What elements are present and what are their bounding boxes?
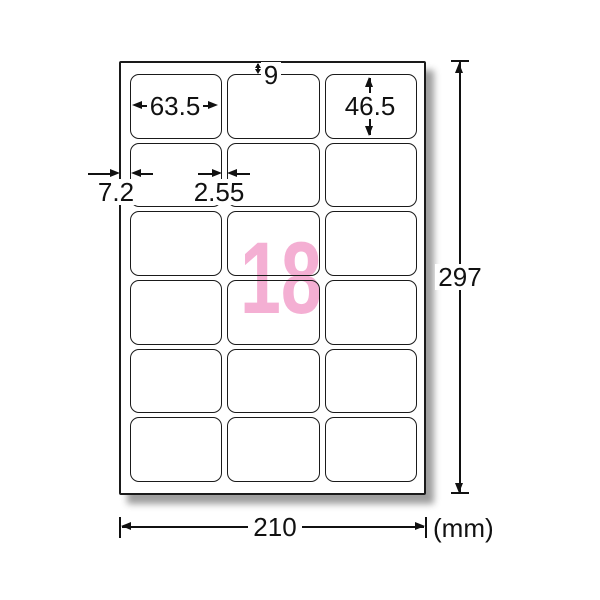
dim-end-cap (451, 492, 469, 494)
label-cell (325, 417, 417, 482)
dim-sheet-height-value: 297 (435, 264, 485, 290)
label-cell (227, 211, 319, 276)
dim-line (237, 173, 250, 175)
arrowhead-right-icon (212, 169, 222, 177)
arrowhead-down-icon (365, 126, 373, 136)
label-sheet-dimension-diagram: 18 63.5 46.5 9 7.2 2.55 (0, 0, 600, 600)
dim-label-width-value: 63.5 (147, 93, 203, 119)
label-cell (227, 349, 319, 414)
unit-label: (mm) (433, 514, 494, 542)
arrowhead-left-icon (132, 101, 142, 109)
dim-side-margin-value: 7.2 (92, 179, 140, 205)
label-cell (130, 349, 222, 414)
label-cell (227, 280, 319, 345)
label-grid (130, 74, 417, 482)
label-cell (130, 417, 222, 482)
dim-end-cap (425, 517, 427, 538)
label-cell (130, 280, 222, 345)
dim-line (88, 173, 111, 175)
arrowhead-right-icon (110, 169, 120, 177)
dim-sheet-width-value: 210 (248, 514, 302, 540)
arrowhead-right-icon (208, 101, 218, 109)
label-cell (325, 211, 417, 276)
arrowhead-up-icon (365, 77, 373, 87)
arrowhead-left-icon (121, 522, 131, 530)
label-cell (325, 280, 417, 345)
dim-column-gap-value: 2.55 (187, 179, 251, 205)
label-cell (227, 417, 319, 482)
dim-label-height-value: 46.5 (341, 93, 399, 119)
arrowhead-up-icon (455, 63, 463, 73)
arrowhead-right-icon (415, 522, 425, 530)
arrowhead-left-icon (227, 169, 237, 177)
label-cell (130, 211, 222, 276)
dim-top-margin-value: 9 (261, 62, 281, 88)
label-cell (325, 349, 417, 414)
dim-line (198, 173, 212, 175)
label-cell (325, 143, 417, 208)
dim-line (140, 173, 153, 175)
